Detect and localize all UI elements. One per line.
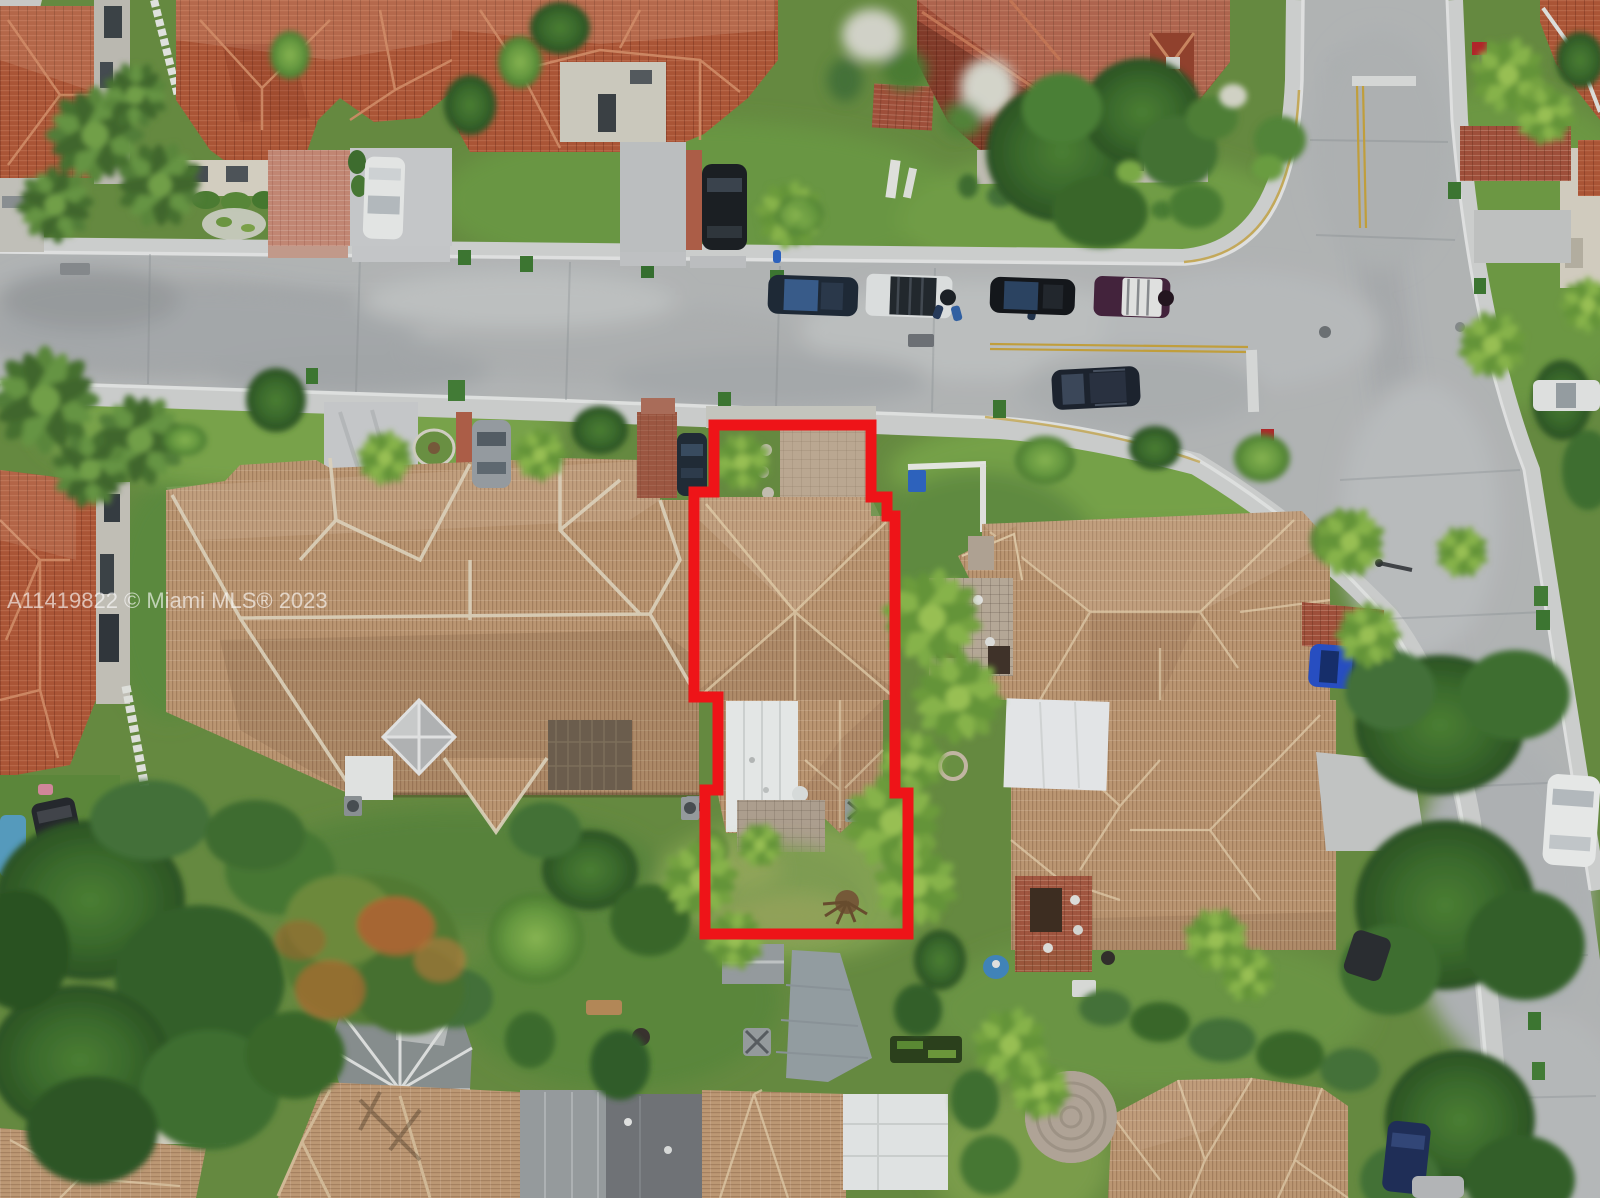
svg-text:A11419822 © Miami MLS® 2023: A11419822 © Miami MLS® 2023: [7, 588, 328, 613]
